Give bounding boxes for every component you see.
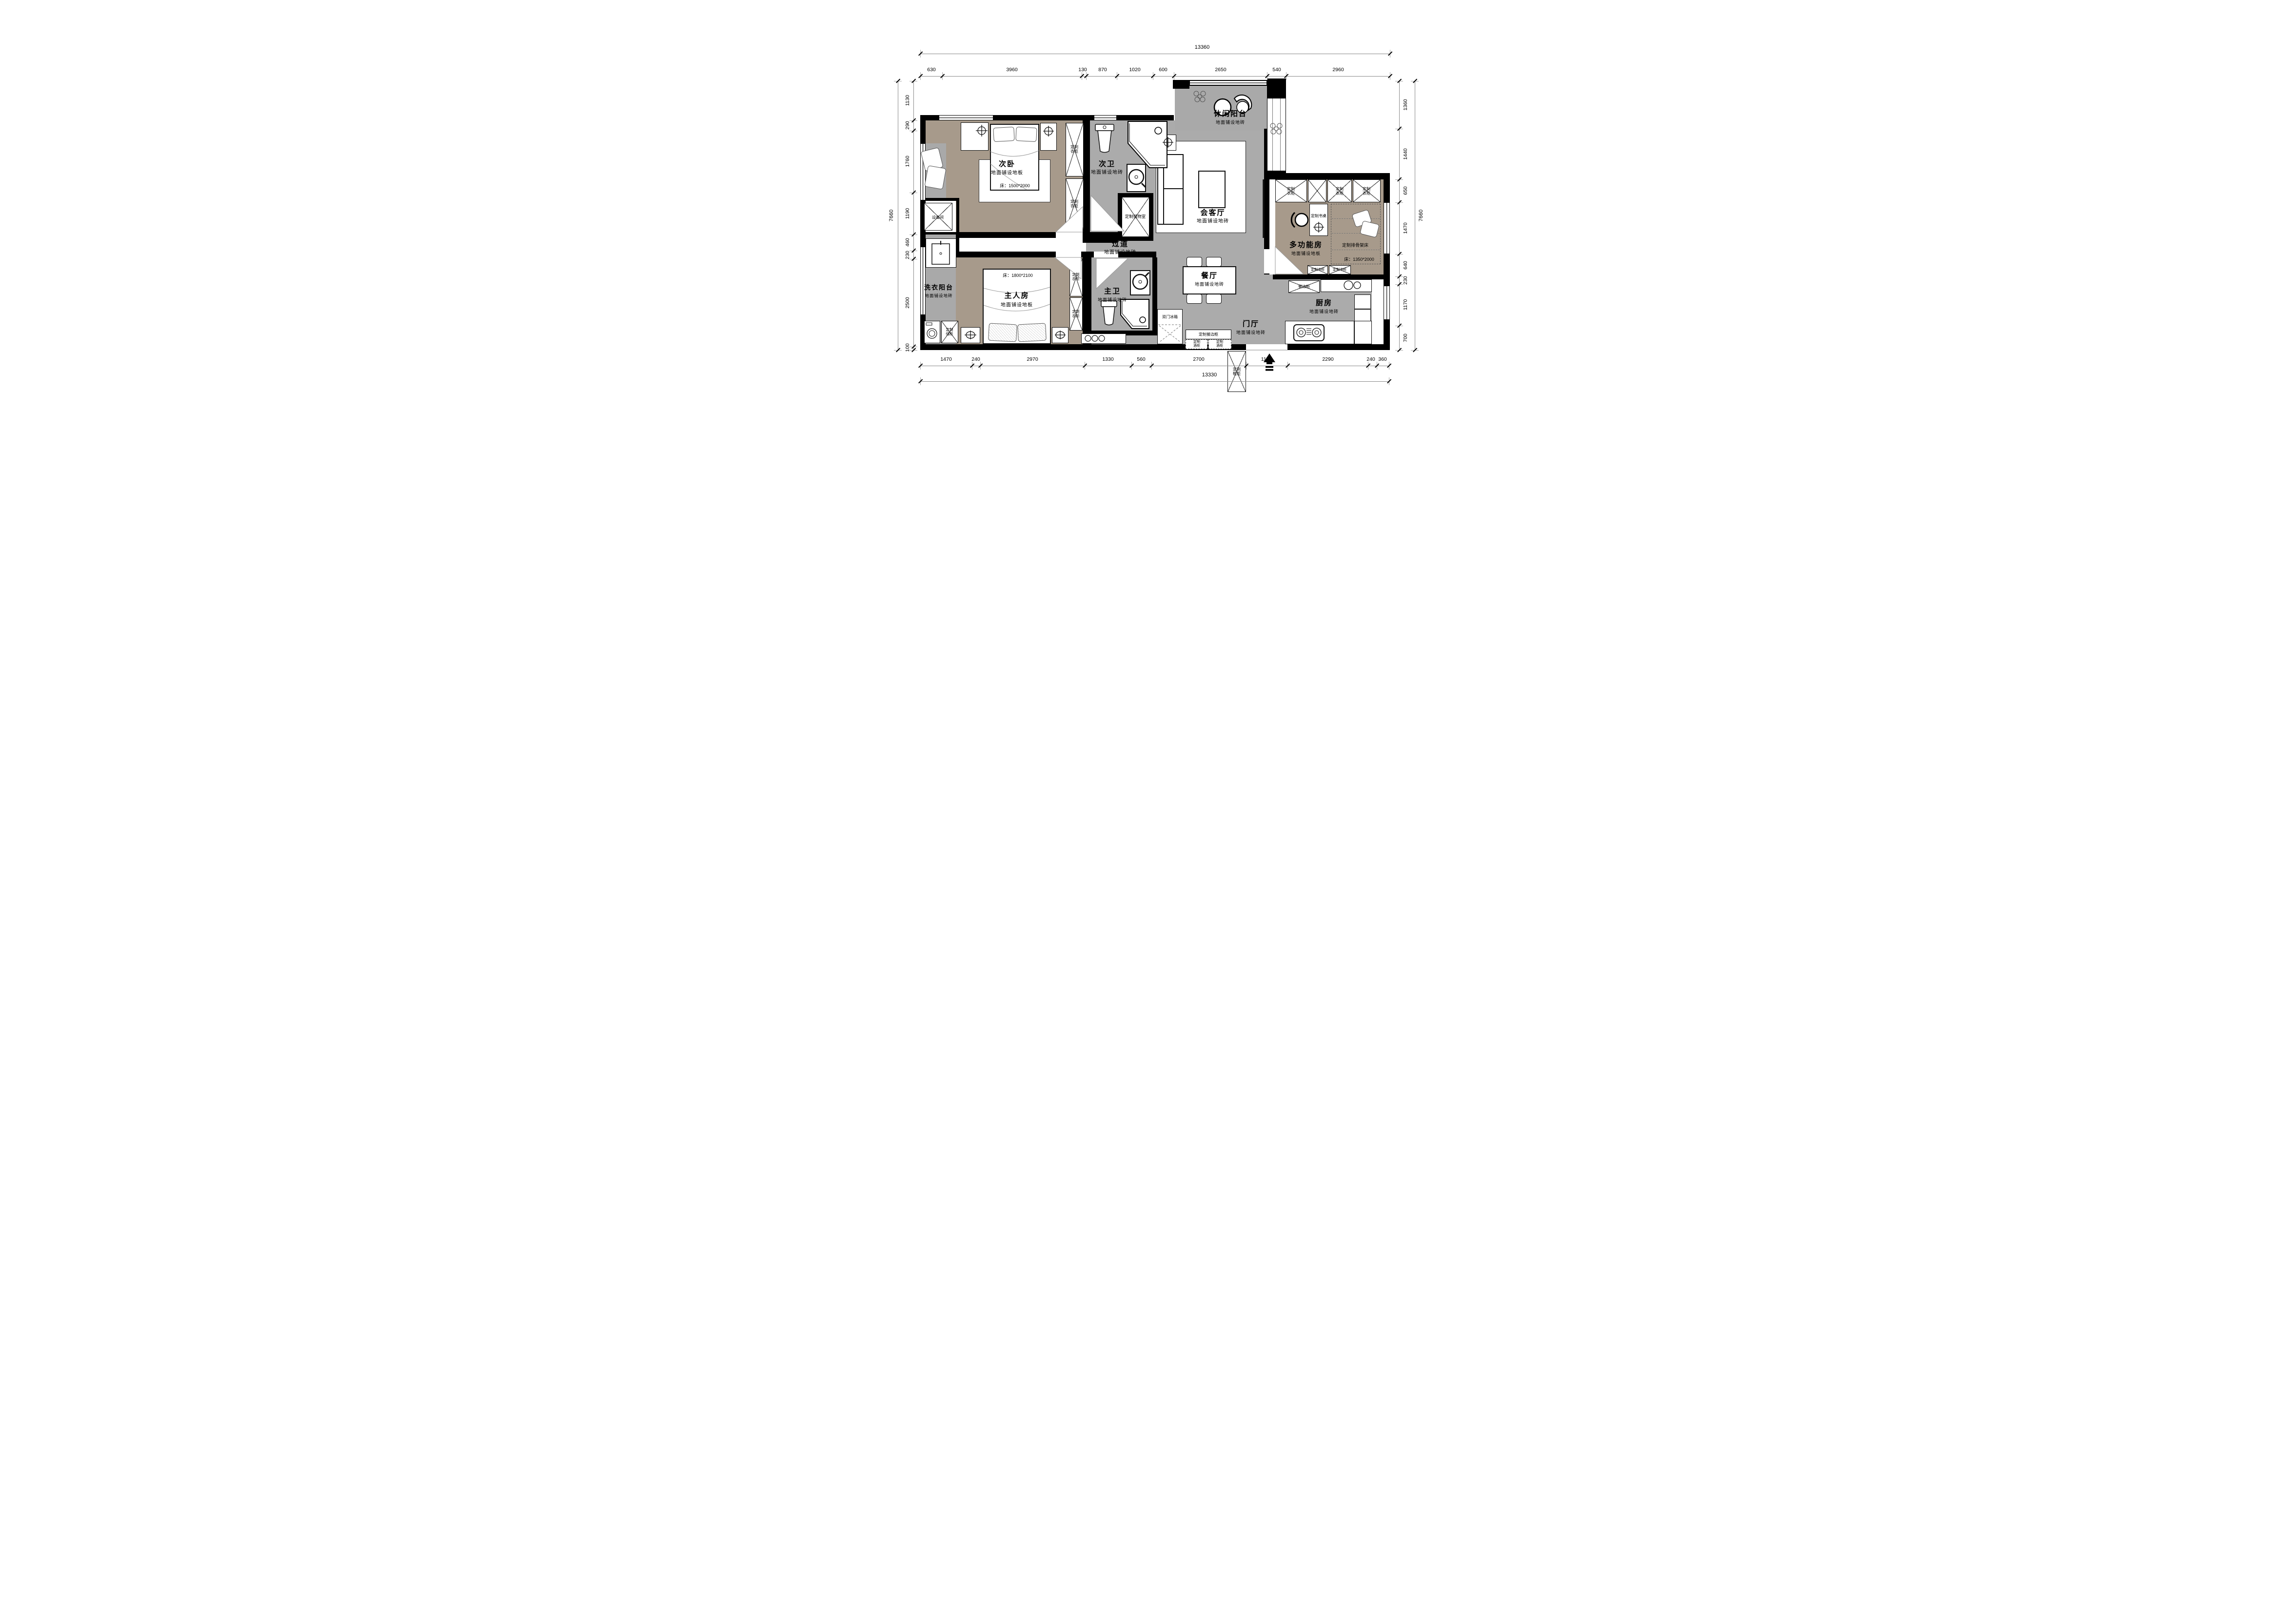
dim-left-seg: 1130 — [905, 95, 910, 106]
master-pillow — [1017, 323, 1047, 342]
ac-unit — [1160, 135, 1176, 151]
dining-chair — [1206, 294, 1222, 304]
dim-right-seg: 230 — [1403, 276, 1408, 285]
dim-bottom-seg: 1470 — [940, 356, 951, 362]
floor-label-kitchen: 地面铺设地砖 — [1309, 310, 1339, 314]
wall-bed2-bath2 — [1083, 115, 1090, 238]
dim-right-total: 7660 — [1418, 210, 1424, 221]
sofa-cushion-line — [1164, 188, 1183, 189]
dim-top-seg: 3960 — [1006, 67, 1017, 73]
bookcase-label: 定制书柜 — [1331, 268, 1348, 272]
wall-equip-bottom — [920, 232, 958, 235]
floor-label-master: 地面铺设地板 — [1001, 303, 1033, 309]
wall-right — [1384, 173, 1390, 350]
window-kitchen-icon — [1384, 286, 1390, 320]
dim-right-seg: 640 — [1403, 261, 1408, 270]
master-nightstand-right — [1052, 327, 1068, 343]
dim-line-right-seg — [1399, 81, 1400, 350]
floor-label-living: 地面铺设地砖 — [1197, 219, 1229, 225]
dim-left-total: 7660 — [889, 210, 894, 221]
floor-label-master-bath: 地面铺设地砖 — [1098, 298, 1127, 303]
dim-right-seg: 1170 — [1403, 299, 1408, 311]
dining-table — [1183, 266, 1236, 294]
washing-machine — [924, 321, 940, 343]
room-label-secondary-bath: 次卫 — [1099, 160, 1115, 168]
wardrobe-multi-2 — [1308, 179, 1326, 202]
dim-bottom-seg: 360 — [1378, 356, 1387, 362]
wine-cabinet-label: 定制酒柜 — [1215, 340, 1225, 348]
bed2-pillow — [993, 127, 1014, 142]
wardrobe-label: 定制衣柜 — [1361, 187, 1372, 196]
window-bed2-icon — [939, 115, 993, 120]
room-label-balcony: 休闲阳台 — [1214, 110, 1247, 118]
door-gap-master — [1056, 252, 1081, 257]
dim-line-right-total — [1415, 81, 1415, 350]
master-nightstand-left — [961, 327, 980, 343]
dim-bottom-seg: 1170 — [1261, 356, 1272, 362]
floor-label-secondary-bedroom: 地面铺设地板 — [991, 171, 1023, 176]
dim-line-bottom-seg — [920, 366, 1389, 366]
floor-label-hallway: 地面铺设地砖 — [1104, 251, 1136, 256]
dim-left-seg: 100 — [905, 343, 910, 352]
wardrobe-label: 定制衣柜 — [1070, 273, 1081, 281]
shoe-cabinet-label: 定制鞋柜 — [1232, 367, 1242, 376]
dim-top-seg: 2650 — [1215, 67, 1226, 73]
dim-right-seg: 1440 — [1403, 148, 1408, 159]
floor-label-secondary-bath: 地面铺设地砖 — [1091, 171, 1123, 176]
dim-left-seg: 230 — [905, 251, 910, 259]
fridge-label: 双门冰箱 — [1160, 314, 1180, 319]
wardrobe-label: 定制衣柜 — [1286, 187, 1296, 196]
dim-line-left-total — [898, 81, 898, 350]
room-label-laundry: 洗衣阳台 — [924, 284, 953, 291]
kitchen-corner-unit — [1354, 321, 1372, 344]
dim-bottom-seg: 2290 — [1322, 356, 1333, 362]
dresser — [1081, 333, 1126, 344]
dim-bottom-seg: 240 — [971, 356, 980, 362]
dim-bottom-seg: 560 — [1137, 356, 1146, 362]
window-balcony-icon — [1189, 80, 1267, 85]
dim-top-seg: 2960 — [1332, 67, 1344, 73]
dim-top-seg: 600 — [1159, 67, 1167, 73]
slatted-bed-line — [1332, 250, 1380, 250]
bed-size-multi: 床：1350*2000 — [1344, 257, 1374, 262]
custom-sideboard-label: 定制餐边柜 — [1187, 332, 1230, 336]
master-pillow — [988, 323, 1017, 342]
wardrobe-label: 定制衣柜 — [1069, 145, 1080, 154]
desk — [1309, 204, 1328, 236]
room-label-living: 会客厅 — [1200, 209, 1225, 217]
kitchen-tall-unit-line — [1355, 309, 1370, 310]
desk-label: 定制书桌 — [1311, 215, 1326, 219]
room-label-dining: 餐厅 — [1201, 272, 1218, 280]
wardrobe-label: 定制衣柜 — [1334, 187, 1345, 196]
window-column-plant — [1267, 98, 1286, 171]
dim-bottom-seg: 1330 — [1102, 356, 1113, 362]
nightstand-right — [1040, 123, 1057, 151]
dim-top-seg: 1020 — [1129, 67, 1140, 73]
dining-chair — [1187, 257, 1202, 267]
wall-kitchen-top — [1273, 274, 1384, 279]
dim-line-left-seg — [913, 81, 914, 350]
dim-left-seg: 1190 — [905, 208, 910, 219]
door-gap-entrance — [1246, 344, 1287, 350]
dim-line-bottom-total — [920, 381, 1389, 382]
bath1-sink-box — [1130, 270, 1150, 295]
nightstand-left — [961, 122, 989, 151]
laundry-storage-label: 定制储柜 — [945, 328, 954, 336]
window-multiroom-icon — [1384, 202, 1390, 254]
room-label-kitchen: 厨房 — [1316, 299, 1332, 307]
door-gap-multiroom — [1264, 249, 1269, 274]
bed-size-master: 床：1800*2100 — [1003, 274, 1033, 278]
bookcase-label: 定制书柜 — [1309, 268, 1326, 272]
floor-plan-canvas: 次卧 地面铺设地板 床：1500*2000 次卫 地面铺设地砖 休闲阳台 地面铺… — [861, 3, 1434, 409]
wall-balcony-right-pillar — [1267, 78, 1286, 98]
wall-equip-top — [920, 198, 959, 201]
dining-chair — [1206, 257, 1222, 267]
dim-right-seg: 700 — [1403, 333, 1408, 342]
dim-left-seg: 460 — [905, 238, 910, 247]
floor-label-balcony: 地面铺设地砖 — [1216, 120, 1245, 125]
wall-bath1-right — [1152, 257, 1157, 331]
dim-bottom-seg: 2970 — [1027, 356, 1038, 362]
wardrobe-label: 定制衣柜 — [1069, 199, 1080, 208]
wall-equip-right — [956, 198, 959, 235]
laundry-basin — [926, 238, 956, 268]
dim-line-top-seg — [920, 76, 1390, 77]
dining-chair — [1187, 294, 1202, 304]
dim-right-seg: 650 — [1403, 186, 1408, 195]
dim-left-seg: 1760 — [905, 156, 910, 167]
window-laundry-icon — [920, 247, 926, 315]
window-bath2-icon — [1094, 115, 1117, 120]
sofa — [1157, 154, 1184, 225]
room-label-entry: 门厅 — [1243, 320, 1259, 328]
dim-top-seg: 630 — [927, 67, 936, 73]
bath2-sink-box — [1127, 164, 1146, 192]
floor-label-entry: 地面铺设地砖 — [1236, 331, 1266, 335]
kitchen-counter-bottom — [1285, 321, 1354, 344]
slatted-bed-label: 定制排骨架床 — [1342, 243, 1368, 248]
dim-left-seg: 2500 — [905, 297, 910, 308]
storage-room-label: 定制储物室 — [1122, 215, 1149, 219]
dim-bottom-total: 13330 — [1202, 372, 1217, 378]
dim-left-seg: 290 — [905, 121, 910, 130]
alcove-pillow — [924, 165, 946, 190]
room-label-hallway: 过道 — [1112, 240, 1128, 248]
wall-multiroom-top — [1273, 173, 1390, 179]
equipment-label: 设备间 — [928, 215, 948, 219]
room-label-secondary-bedroom: 次卧 — [999, 160, 1015, 168]
wardrobe-label: 定制衣柜 — [1070, 310, 1081, 318]
coffee-table — [1198, 171, 1226, 208]
wall-balcony-left-pillar — [1173, 80, 1189, 89]
room-label-multi: 多功能房 — [1289, 241, 1323, 249]
dim-right-seg: 1470 — [1403, 222, 1408, 234]
floor-label-multi: 地面铺设地板 — [1291, 252, 1321, 256]
floor-label-laundry: 地面铺设地砖 — [925, 293, 952, 298]
kitchen-sideboard-label: 餐边柜 — [1289, 284, 1319, 289]
dim-top-total: 13360 — [1195, 44, 1210, 50]
sofa-back-line — [1163, 155, 1164, 224]
bed2-pillow — [1015, 127, 1037, 142]
dim-top-seg: 870 — [1098, 67, 1107, 73]
kitchen-counter-top — [1321, 279, 1372, 292]
wall-laundry-divider — [956, 238, 959, 253]
floor-label-dining: 地面铺设地砖 — [1195, 282, 1224, 287]
wall-bottom-right — [1287, 344, 1390, 350]
room-label-master: 主人房 — [1004, 292, 1029, 300]
dim-line-top-total — [920, 54, 1390, 54]
room-label-master-bath: 主卫 — [1104, 288, 1121, 295]
bed-size-secondary: 床：1500*2000 — [1000, 184, 1030, 189]
dim-right-seg: 1360 — [1403, 99, 1408, 110]
dim-bottom-seg: 2700 — [1193, 356, 1204, 362]
door-gap-bed2 — [1056, 232, 1083, 238]
wine-cabinet-label: 定制酒柜 — [1192, 340, 1202, 348]
dim-top-seg: 540 — [1272, 67, 1281, 73]
